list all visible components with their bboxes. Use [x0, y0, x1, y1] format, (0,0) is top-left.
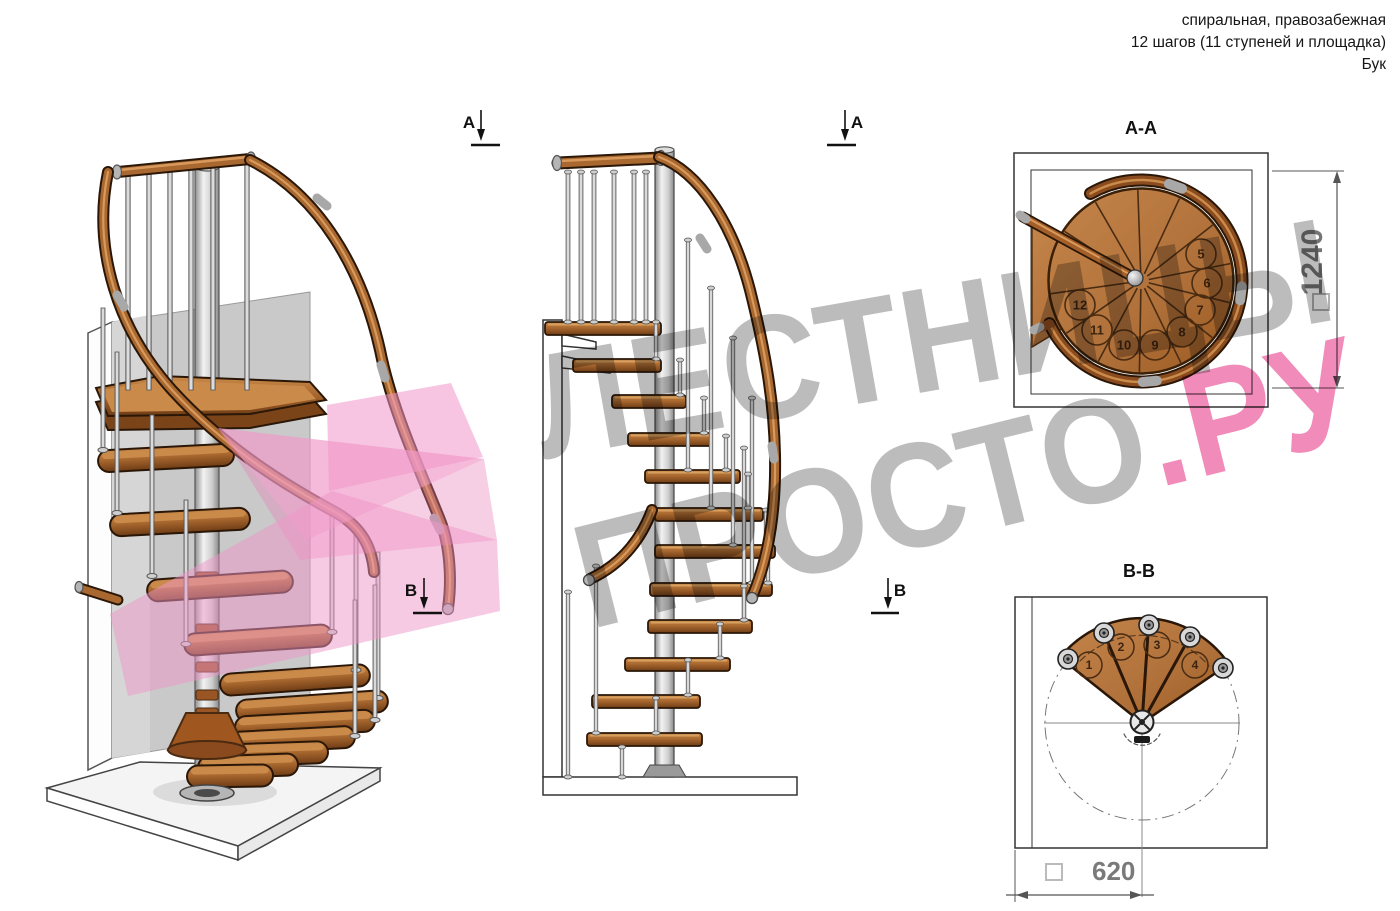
step-number-label: 8 — [1178, 325, 1185, 340]
drawing-title-block: спиральная, правозабежная 12 шагов (11 с… — [1131, 10, 1386, 76]
step-number-label: 7 — [1196, 303, 1203, 318]
elevation-side-view — [543, 147, 797, 795]
section-view-bb: B-B1234620 — [1006, 561, 1267, 902]
step-number-label: 9 — [1151, 338, 1158, 353]
section-view-aa: A-A567891011121240 — [1014, 118, 1344, 407]
section-bb-title: B-B — [1123, 561, 1155, 581]
marker-a-left: A — [463, 113, 475, 132]
staircase-drawing-sheet: A-A567891011121240 B-B1234620 AABB ЛЕСТН… — [0, 0, 1400, 911]
step-number-label: 1 — [1086, 658, 1093, 672]
steps-count-label: 12 шагов (11 ступеней и площадка) — [1131, 32, 1386, 54]
marker-b-left: B — [405, 581, 417, 600]
marker-b-right: B — [894, 581, 906, 600]
material-label: Бук — [1131, 54, 1386, 76]
dimension-1240-label: 1240 — [1296, 229, 1329, 296]
step-number-label: 12 — [1073, 298, 1087, 313]
dimension-620-label: 620 — [1092, 856, 1135, 886]
step-number-label: 11 — [1090, 323, 1104, 338]
stair-type-label: спиральная, правозабежная — [1131, 10, 1386, 32]
step-number-label: 4 — [1192, 658, 1199, 672]
step-number-label: 3 — [1154, 638, 1161, 652]
step-number-label: 6 — [1203, 276, 1210, 291]
technical-drawing-canvas: A-A567891011121240 B-B1234620 AABB — [0, 0, 1400, 911]
section-aa-title: A-A — [1125, 118, 1157, 138]
step-number-label: 2 — [1118, 640, 1125, 654]
marker-a-right: A — [851, 113, 863, 132]
step-number-label: 10 — [1117, 338, 1131, 353]
step-number-label: 5 — [1197, 247, 1204, 262]
